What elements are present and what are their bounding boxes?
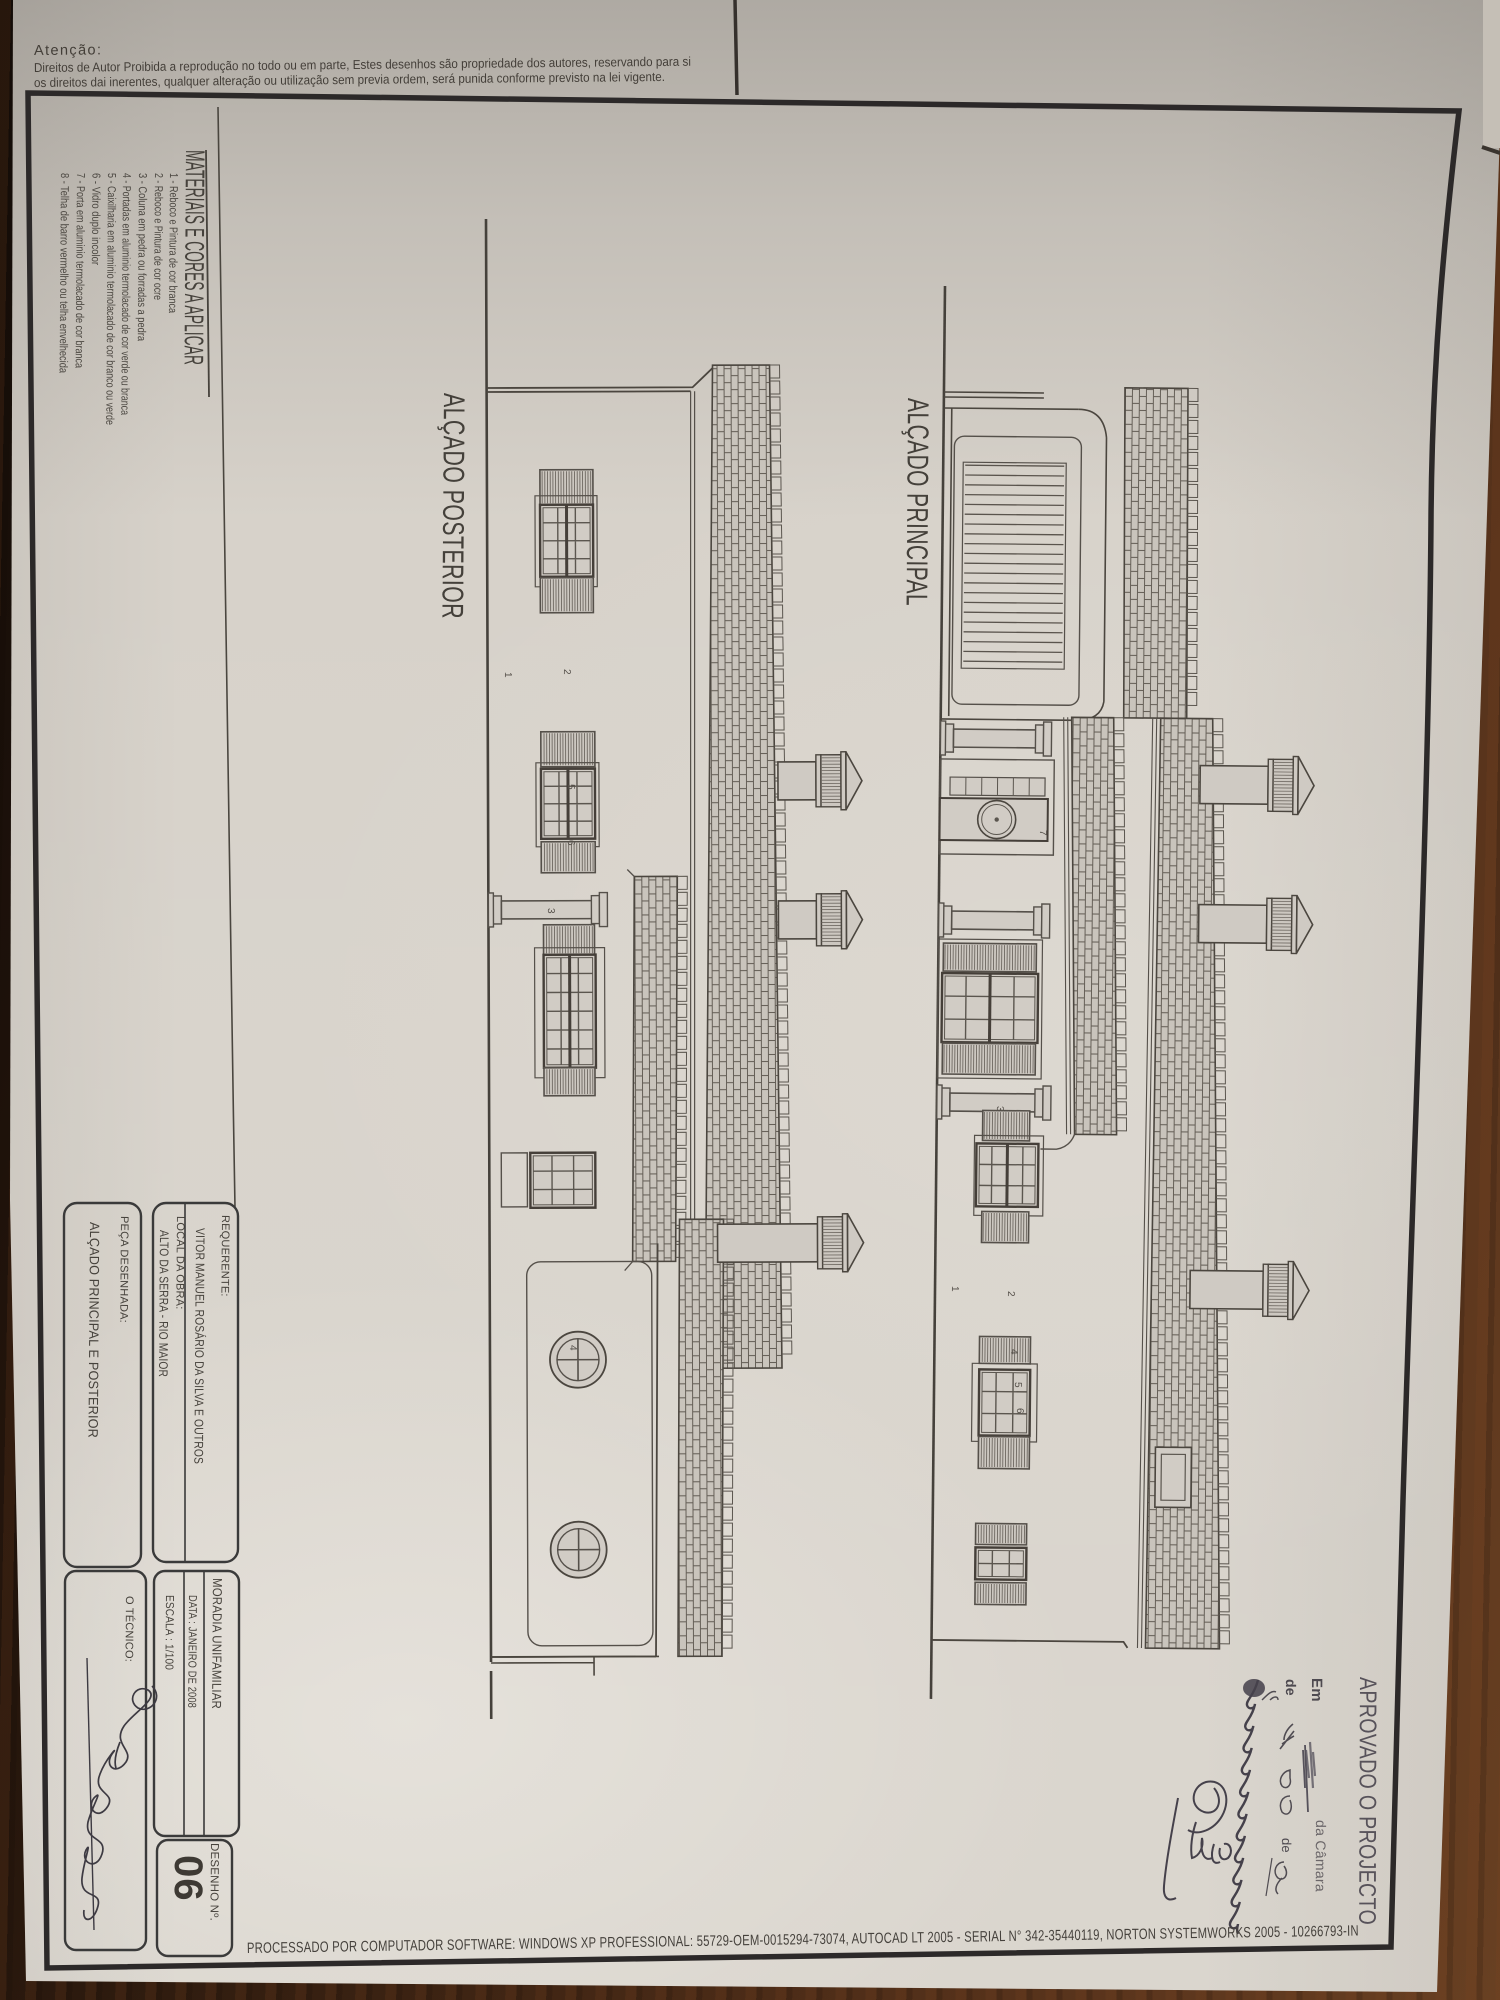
svg-text:2: 2: [1005, 1291, 1016, 1297]
svg-text:Atenção:: Atenção:: [34, 42, 103, 59]
svg-text:4: 4: [1008, 1349, 1019, 1355]
svg-text:5 - Caixilharia em aluminio te: 5 - Caixilharia em aluminio termolacado …: [103, 173, 117, 425]
svg-text:7 - Porta em aluminio termolac: 7 - Porta em aluminio termolacado de cor…: [73, 173, 86, 369]
svg-text:ALÇADO PRINCIPAL E POSTERIOR: ALÇADO PRINCIPAL E POSTERIOR: [85, 1222, 102, 1438]
svg-text:5: 5: [565, 784, 576, 790]
svg-text:DATA : JANEIRO DE 2008: DATA : JANEIRO DE 2008: [185, 1595, 198, 1708]
svg-text:06: 06: [166, 1855, 210, 1902]
svg-text:8 - Telha de barro vermelho ou: 8 - Telha de barro vermelho ou telha env…: [57, 173, 70, 374]
svg-text:Em: Em: [1308, 1678, 1325, 1702]
svg-text:PEÇA DESENHADA:: PEÇA DESENHADA:: [117, 1216, 130, 1323]
svg-text:6: 6: [1014, 1408, 1025, 1414]
svg-text:de: de: [1283, 1679, 1299, 1696]
svg-text:O TÉCNICO:: O TÉCNICO:: [123, 1596, 136, 1662]
svg-text:7: 7: [1037, 830, 1048, 836]
svg-text:ALTO DA SERRA - RIO MAIOR: ALTO DA SERRA - RIO MAIOR: [156, 1230, 171, 1377]
svg-text:MORADIA UNIFAMILIAR: MORADIA UNIFAMILIAR: [209, 1578, 225, 1709]
svg-text:6: 6: [565, 840, 576, 846]
svg-text:1: 1: [502, 672, 513, 678]
svg-text:4 - Portadas em aluminio termo: 4 - Portadas em aluminio termolacado de …: [118, 173, 132, 416]
svg-text:1 - Reboco e Pintura de cor br: 1 - Reboco e Pintura de cor branca: [166, 173, 179, 314]
svg-text:3: 3: [994, 1106, 1005, 1112]
svg-text:ESCALA : 1/100: ESCALA : 1/100: [162, 1595, 175, 1670]
svg-text:6 - Vidro duplo incolor: 6 - Vidro duplo incolor: [89, 173, 102, 265]
svg-text:ALÇADO PRINCIPAL: ALÇADO PRINCIPAL: [900, 398, 934, 606]
svg-text:VITOR MANUEL ROSÁRIO DA SILVA: VITOR MANUEL ROSÁRIO DA SILVA E OUTROS: [191, 1228, 208, 1464]
svg-text:3 - Coluna em pedra ou forrada: 3 - Coluna em pedra ou forradas a pedra: [135, 173, 148, 342]
svg-text:3: 3: [545, 908, 556, 914]
svg-text:ALÇADO POSTERIOR: ALÇADO POSTERIOR: [435, 393, 470, 619]
svg-text:da Câmara: da Câmara: [1313, 1820, 1329, 1892]
svg-text:APROVADO O PROJECTO: APROVADO O PROJECTO: [1353, 1677, 1381, 1925]
svg-text:LOCAL DA OBRA:: LOCAL DA OBRA:: [173, 1216, 186, 1310]
svg-text:4: 4: [567, 1345, 578, 1351]
svg-text:MATERIAIS E CORES A APLICAR: MATERIAIS E CORES A APLICAR: [178, 150, 210, 365]
svg-text:5: 5: [1012, 1382, 1023, 1388]
svg-text:1: 1: [949, 1286, 960, 1292]
svg-text:2 - Reboco e Pintura de cor oc: 2 - Reboco e Pintura de cor ocre: [151, 173, 164, 300]
svg-text:de: de: [1279, 1838, 1294, 1853]
svg-text:2: 2: [561, 669, 572, 675]
svg-text:REQUERENTE:: REQUERENTE:: [218, 1215, 231, 1297]
